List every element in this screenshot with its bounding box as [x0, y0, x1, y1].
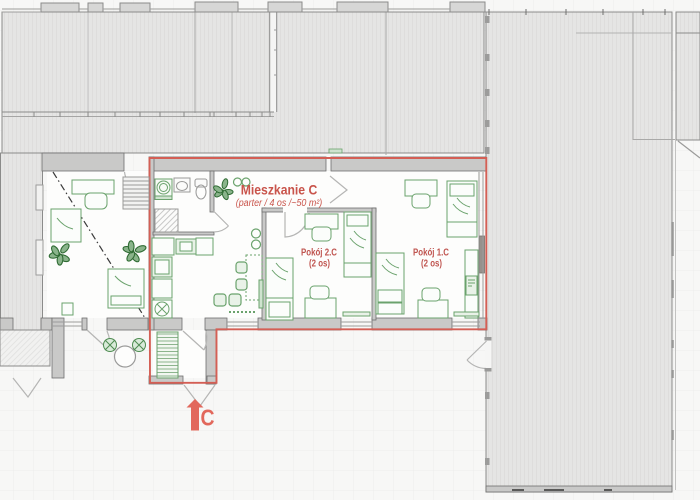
- svg-text:(parter / 4 os /~50 m²): (parter / 4 os /~50 m²): [236, 198, 323, 209]
- svg-text:(2 os): (2 os): [421, 259, 442, 270]
- svg-text:Pokój 2.C: Pokój 2.C: [301, 246, 337, 258]
- svg-text:Mieszkanie C: Mieszkanie C: [241, 182, 318, 198]
- svg-text:Pokój 1.C: Pokój 1.C: [413, 246, 449, 258]
- svg-text:C: C: [201, 405, 215, 431]
- svg-text:(2 os): (2 os): [309, 259, 330, 270]
